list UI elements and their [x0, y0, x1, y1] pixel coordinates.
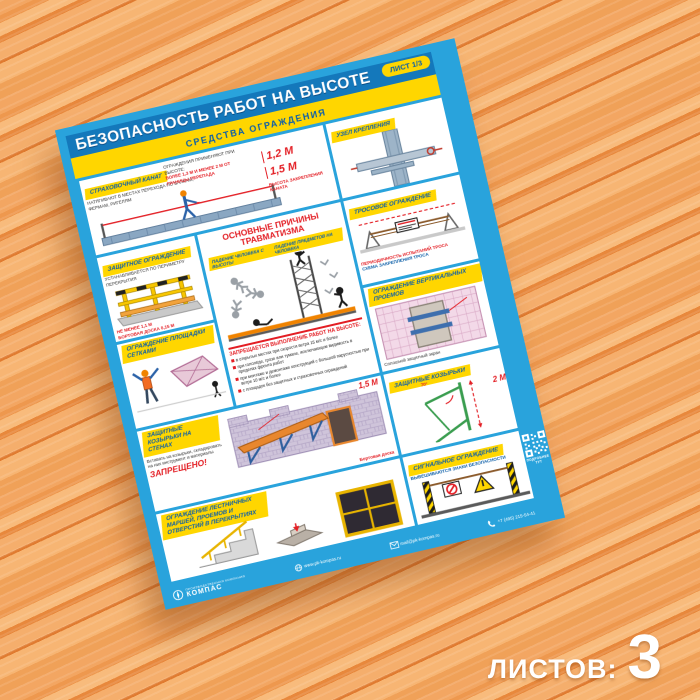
panel-grid: СТРАХОВОЧНЫЙ КАНАТ НАТЯГИВАЮТ В МЕСТАХ П… — [75, 95, 534, 585]
email-text: mail@pk-kompas.ru — [400, 532, 440, 546]
phone-icon — [487, 518, 497, 528]
sheets-count-overlay: ЛИСТОВ: 3 — [488, 630, 662, 686]
dim-line — [261, 151, 265, 163]
website-contact: www.pk-kompas.ru — [293, 554, 342, 573]
poster-pad: ЛИСТ 1/3 БЕЗОПАСНОСТЬ РАБОТ НА ВЫСОТЕ СР… — [55, 38, 565, 610]
sheets-number: 3 — [628, 630, 662, 686]
poster-sheet: ЛИСТ 1/3 БЕЗОПАСНОСТЬ РАБОТ НА ВЫСОТЕ СР… — [65, 52, 534, 585]
rope-dimensions: 1,2 М 1,5 М ВЫСОТА ЗАКРЕПЛЕНИЯ КАНАТА — [261, 138, 329, 193]
brand-mark-compass-icon — [172, 589, 185, 602]
safety-poster: ЛИСТ 1/3 БЕЗОПАСНОСТЬ РАБОТ НА ВЫСОТЕ СР… — [55, 38, 565, 610]
phone-text: +7 (495) 215-54-41 — [497, 510, 536, 524]
mail-icon — [389, 541, 399, 550]
rope-dim-2: 1,5 М — [269, 161, 298, 178]
visor-dim: 2 М — [492, 373, 507, 384]
rope-dim-1: 1,2 М — [265, 145, 294, 162]
phone-contact: +7 (495) 215-54-41 — [487, 509, 536, 528]
sheets-label: ЛИСТОВ: — [488, 654, 618, 685]
website-text: www.pk-kompas.ru — [303, 555, 341, 568]
globe-icon — [293, 563, 303, 573]
email-contact: mail@pk-kompas.ru — [389, 531, 440, 549]
product-mockup-scene: ЛИСТ 1/3 БЕЗОПАСНОСТЬ РАБОТ НА ВЫСОТЕ СР… — [0, 0, 700, 700]
